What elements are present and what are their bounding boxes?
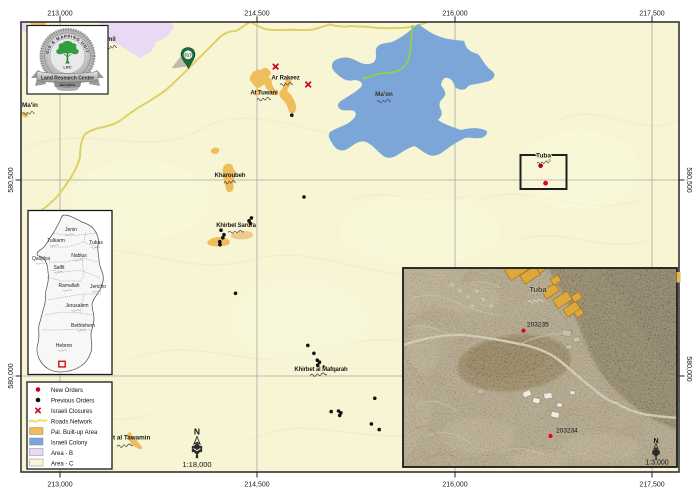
svg-text:Ma'in: Ma'in [22,102,38,109]
svg-text:580,000: 580,000 [8,363,15,388]
svg-text:Kharoubeh: Kharoubeh [215,173,246,179]
svg-text:New Orders: New Orders [51,388,83,394]
svg-text:213,000: 213,000 [47,482,72,489]
svg-text:March2011: March2011 [60,83,76,87]
svg-text:Ma'on: Ma'on [375,91,393,98]
svg-text:203235: 203235 [527,322,549,329]
svg-text:216,000: 216,000 [442,482,467,489]
svg-text:Khirbet al Mafqarah: Khirbet al Mafqarah [294,367,348,373]
svg-text:Jenin: Jenin [65,227,77,233]
svg-text:Land Research Center: Land Research Center [41,75,94,81]
svg-text:214,500: 214,500 [244,482,269,489]
svg-text:Tuba: Tuba [529,285,547,294]
svg-text:214,500: 214,500 [244,11,269,18]
svg-text:Israeli Colony: Israeli Colony [51,441,87,447]
svg-text:Israeli Closures: Israeli Closures [51,409,92,415]
svg-text:Tuba: Tuba [536,153,551,160]
svg-text:N: N [194,427,200,437]
svg-text:Area - C: Area - C [51,462,74,468]
svg-text:Tulkarm: Tulkarm [47,238,65,244]
svg-text:1:18,000: 1:18,000 [182,460,211,469]
svg-text:Previous Orders: Previous Orders [51,399,94,405]
svg-text:Hebron: Hebron [56,343,73,349]
svg-text:Ramallah: Ramallah [58,283,79,289]
svg-text:Nablus: Nablus [71,253,87,259]
svg-text:217,500: 217,500 [639,482,664,489]
svg-text:580,500: 580,500 [685,167,692,192]
svg-text:Salfit: Salfit [53,265,65,271]
svg-text:Tubas: Tubas [89,240,103,246]
svg-text:Jericho: Jericho [90,284,106,290]
svg-text:213,000: 213,000 [47,11,72,18]
svg-text:203234: 203234 [556,428,578,435]
svg-text:Bethlehem: Bethlehem [71,323,95,329]
svg-text:580,500: 580,500 [8,167,15,192]
svg-text:Pal. Built-up Area: Pal. Built-up Area [51,430,98,436]
svg-text:Ar Rakeez: Ar Rakeez [272,76,300,82]
svg-text:217,500: 217,500 [639,11,664,18]
svg-text:Qalqilya: Qalqilya [32,256,50,262]
svg-text:Area - B: Area - B [51,451,73,457]
svg-text:t al Tawamin: t al Tawamin [113,435,150,442]
svg-text:216,000: 216,000 [442,11,467,18]
svg-text:At Tuwani: At Tuwani [250,91,278,97]
svg-text:580,000: 580,000 [685,356,692,381]
svg-text:317: 317 [184,53,192,58]
svg-text:Roads Network: Roads Network [51,420,93,426]
svg-text:LRC: LRC [63,65,71,70]
svg-text:Jerusalem: Jerusalem [65,303,88,309]
svg-text:1:3,000: 1:3,000 [645,460,668,467]
